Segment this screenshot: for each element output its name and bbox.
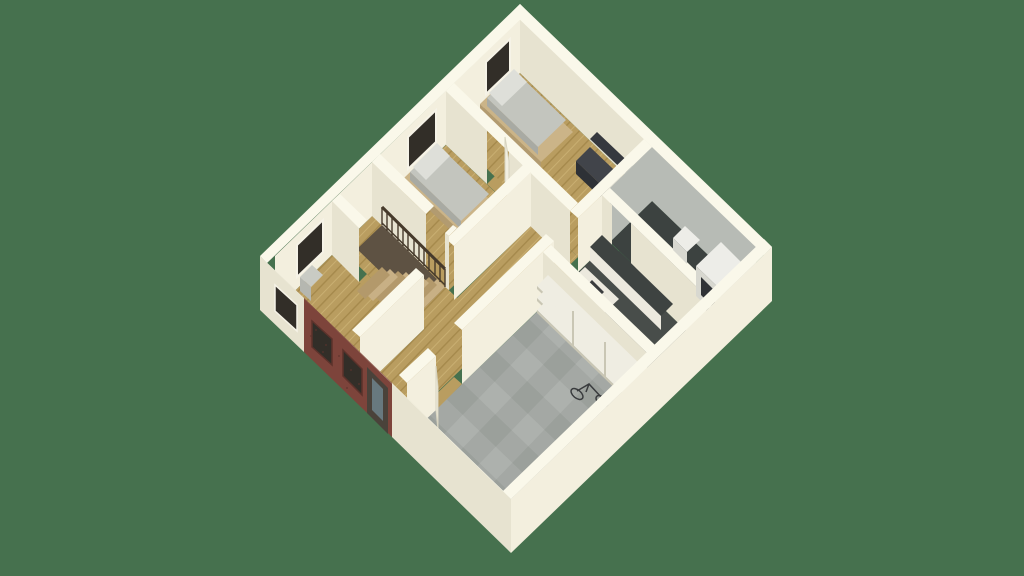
floorplan-render xyxy=(0,0,1024,576)
floorplan-stage xyxy=(0,0,1024,576)
